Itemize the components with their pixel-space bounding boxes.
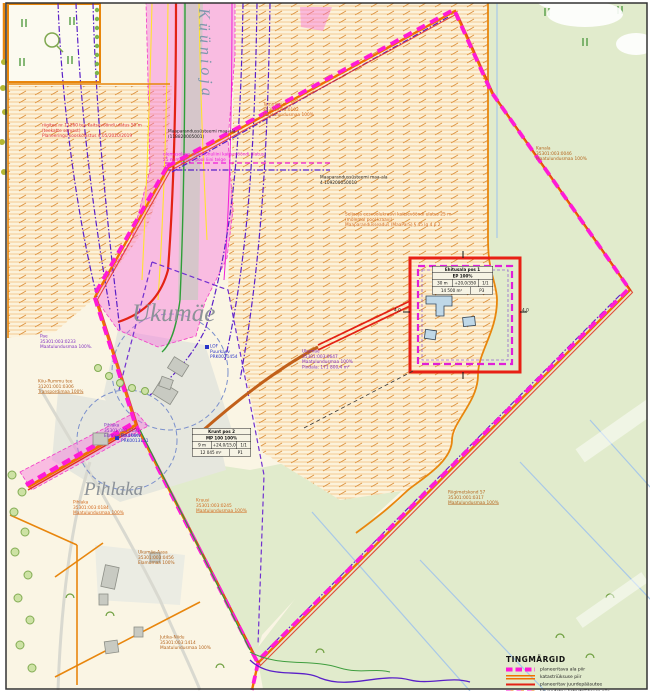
farm-name-pihlaka: Pihlaka xyxy=(84,479,143,501)
legend-title: TINGMÄRGID xyxy=(506,655,650,664)
stream-name-label: Küünioja xyxy=(194,8,215,100)
well-label-1: LOF Puurkaev PRK0021454 xyxy=(210,344,238,360)
parcel-label-metskond: Riigimetskond 57 35301:001:0317 Maatulun… xyxy=(448,490,499,506)
parcel-label-kanala: Kanala 35301:003:0046 Maatulundusmaa 100… xyxy=(536,146,587,162)
cadastral-swatch xyxy=(506,675,535,680)
building-rights-table-pos2: Krunt pos 2 MP 100 100% 9 m +24,0/15,0 1… xyxy=(192,428,251,457)
parcel-label-kruusi: Kruusi 35301:003:0245 Maatulundusmaa 100… xyxy=(196,498,247,514)
dimension-label-right: 4,0 xyxy=(522,308,529,313)
well-label-2: Puurkaev PRK0013151 xyxy=(121,433,149,444)
parcel-label-tammeoja: Tammeoja 35301:003:0102 Maatulundusmaa 1… xyxy=(263,102,314,118)
map-drawing xyxy=(0,0,650,691)
parcel-label-aasa: Ukumäe-Aasa 35301:003:0456 Elamumaa 100% xyxy=(138,550,175,566)
parcel-label-kiiu-tee: Kiiu-Rummu tee 31201:001:0306 Transpordi… xyxy=(38,379,83,395)
road-protection-note: riigitee nr 11260 tee kaitsevööndi ulatu… xyxy=(42,123,142,139)
access-road-swatch xyxy=(506,684,535,686)
plan-boundary-swatch xyxy=(506,668,535,672)
building-rights-table-pos1: Ehitusala pos 1 EP 100% 30 m +20,0/350 1… xyxy=(432,266,493,295)
parcel-label-niidu: Jutika-Niidu 35301:003:1414 Maatulundusm… xyxy=(160,635,211,651)
parcel-label-pihlaka-maa: Pihlaka 35301:003:0184 Maatulundusmaa 10… xyxy=(73,500,124,516)
parcel-label-pae: Pae 35301:003:0233 Maatulundusmaa 100%. xyxy=(40,334,92,350)
parcel-label-ukumae: Ukumäe 35301:003:0647 Maatulundusmaa 100… xyxy=(302,349,353,370)
powerline-note: olemasoleva elektriõhuliini kaitsevööndi… xyxy=(163,152,264,163)
dimension-label-left: 4,0 xyxy=(394,308,401,313)
ditch-note: Seljaoja eesvoolukraavi kaitsevööndi ula… xyxy=(345,212,451,228)
map-legend: TINGMÄRGID planeeritava ala piir katastr… xyxy=(506,655,650,691)
legend-item-cadastral: katastriüksuse piir xyxy=(506,675,650,680)
drainage-note-2: Maaparandussüsteemi maa-ala 4 1092000500… xyxy=(320,175,388,186)
drainage-note-1: Maaparandussüsteemi maa-ala (11882000500… xyxy=(168,129,236,140)
plan-map-canvas[interactable]: Küünioja Ukumäe Pihlaka riigitee nr 1126… xyxy=(0,0,650,691)
legend-item-plan-boundary: planeeritava ala piir xyxy=(506,667,650,672)
legend-item-access-road: planeeritav juurdepääsutee xyxy=(506,682,650,687)
farm-name-ukumae: Ukumäe xyxy=(132,300,215,328)
